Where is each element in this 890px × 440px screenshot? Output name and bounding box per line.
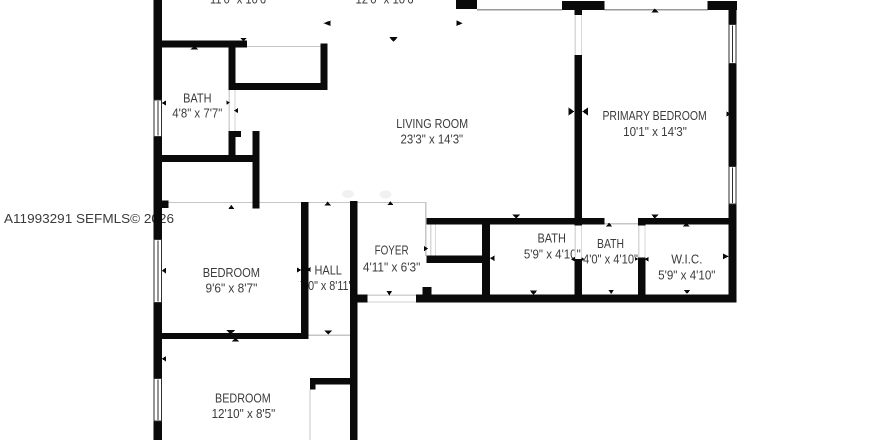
- svg-text:4'8" x 7'7": 4'8" x 7'7": [172, 106, 222, 121]
- svg-text:BEDROOM: BEDROOM: [203, 265, 260, 280]
- svg-text:BATH: BATH: [538, 231, 566, 246]
- svg-text:A11993291 SEFMLS© 2026: A11993291 SEFMLS© 2026: [4, 212, 174, 226]
- svg-text:9'6" x 8'7": 9'6" x 8'7": [206, 281, 258, 296]
- svg-text:BEDROOM: BEDROOM: [215, 390, 271, 405]
- svg-text:HALL: HALL: [315, 262, 342, 277]
- svg-text:5'9" x 4'10": 5'9" x 4'10": [658, 268, 716, 283]
- svg-text:BATH: BATH: [183, 91, 211, 106]
- svg-text:PRIMARY BEDROOM: PRIMARY BEDROOM: [602, 108, 706, 123]
- svg-text:11'0" x 10'6": 11'0" x 10'6": [210, 0, 270, 7]
- svg-text:10'1" x 14'3": 10'1" x 14'3": [623, 124, 687, 139]
- svg-text:FOYER: FOYER: [375, 242, 409, 257]
- svg-text:12'10" x 8'5": 12'10" x 8'5": [212, 406, 276, 421]
- svg-text:LIVING ROOM: LIVING ROOM: [396, 116, 468, 131]
- svg-text:23'3" x 14'3": 23'3" x 14'3": [401, 132, 464, 147]
- svg-text:BATH: BATH: [597, 236, 624, 251]
- svg-text:12'0" x 10'6": 12'0" x 10'6": [356, 0, 418, 7]
- svg-text:4'0" x 4'10": 4'0" x 4'10": [583, 252, 638, 267]
- svg-text:4'11" x 6'3": 4'11" x 6'3": [363, 259, 421, 274]
- svg-text:W.I.C.: W.I.C.: [671, 251, 702, 266]
